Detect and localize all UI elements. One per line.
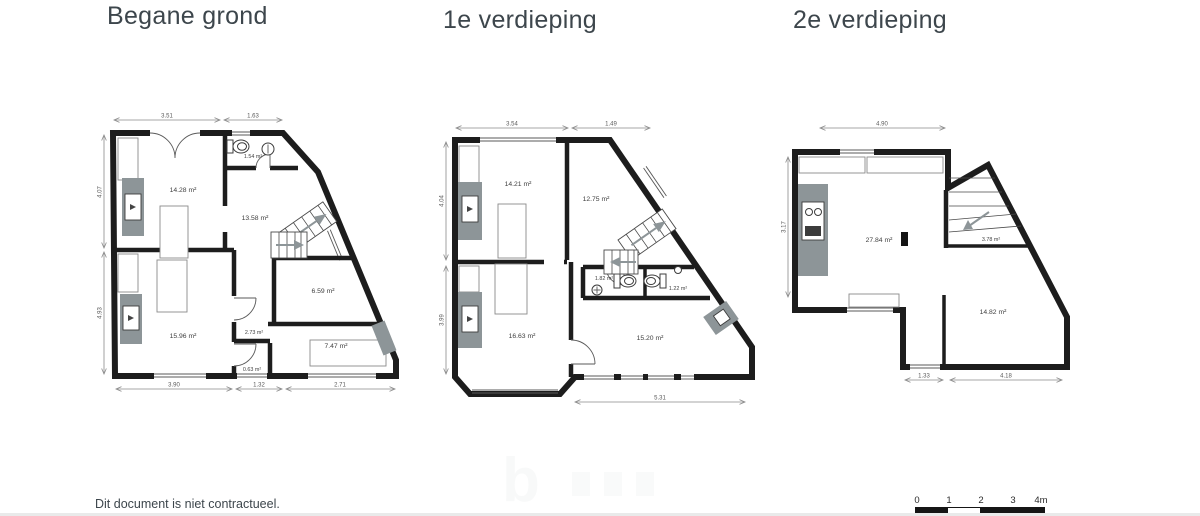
room-label: 2.73 m²: [245, 330, 263, 336]
room-label: 3.78 m²: [982, 237, 1000, 243]
room-label: 14.28 m²: [170, 187, 198, 194]
scale-tick-label: 0: [914, 495, 919, 506]
svg-text:4.18: 4.18: [1000, 374, 1012, 380]
watermark: b: [502, 450, 772, 512]
walls-interior: [455, 140, 710, 377]
svg-text:1.32: 1.32: [253, 383, 265, 389]
svg-text:3.51: 3.51: [161, 114, 173, 120]
shower-icon: [703, 301, 739, 335]
room-label: 27.84 m²: [866, 237, 894, 244]
svg-text:3.17: 3.17: [782, 221, 788, 233]
svg-text:4.07: 4.07: [98, 186, 104, 198]
svg-text:1.49: 1.49: [605, 122, 617, 128]
svg-text:3.90: 3.90: [168, 383, 180, 389]
svg-text:3.99: 3.99: [440, 314, 446, 326]
svg-text:4.93: 4.93: [98, 307, 104, 319]
plan-title-1e-verdieping: 1e verdieping: [443, 6, 597, 35]
room-label: 1.82 m²: [595, 276, 613, 282]
floorplan-sheet: Begane grond 1e verdieping 2e verdieping: [0, 0, 1200, 516]
room-label: 6.59 m²: [311, 288, 335, 295]
column: [901, 232, 908, 246]
stove-icon: [802, 202, 824, 240]
room-label: 7.47 m²: [324, 343, 348, 350]
svg-text:4.90: 4.90: [876, 122, 888, 128]
plan-title-2e-verdieping: 2e verdieping: [793, 6, 947, 35]
scale-tick-label: 2: [978, 495, 983, 506]
toilet-icon: [614, 274, 636, 288]
sink-icon: [262, 143, 274, 155]
furniture: [458, 146, 739, 348]
footer-note: Dit document is niet contractueel.: [95, 497, 280, 511]
plan-title-begane-grond: Begane grond: [107, 2, 268, 31]
scale-tick-label: 1: [946, 495, 951, 506]
toilet-icon: [644, 274, 666, 288]
svg-text:2.71: 2.71: [334, 383, 346, 389]
watermark-blocks: [572, 472, 654, 496]
scale-bar: 0 1 2 3 4m: [915, 495, 1047, 515]
scale-tick-label: 3: [1010, 495, 1015, 506]
toilet-icon: [227, 140, 249, 153]
floorplan-begane-grond: 14.28 m² 1.54 m² 13.58 m² 15.96 m² 2.73 …: [98, 108, 408, 408]
scale-bar-labels: 0 1 2 3 4m: [915, 495, 1047, 506]
svg-text:1.33: 1.33: [918, 374, 930, 380]
svg-text:4.04: 4.04: [440, 195, 446, 207]
room-label: 1.54 m²: [244, 154, 262, 160]
room-label: 15.20 m²: [637, 335, 665, 342]
stairs-straight-icon: [604, 250, 638, 274]
sink-icon: [592, 285, 602, 295]
room-label: 14.21 m²: [505, 181, 533, 188]
room-label: 1.22 m²: [669, 286, 687, 292]
walls-outer: [795, 152, 1067, 367]
room-label: 15.96 m²: [170, 333, 198, 340]
scale-unit-label: 4m: [1034, 495, 1047, 506]
room-label: 0.63 m²: [243, 367, 261, 373]
svg-text:5.31: 5.31: [654, 396, 666, 402]
floorplan-1e-verdieping: 14.21 m² 12.75 m² 1.82 m² 1.22 m² 16.63 …: [438, 110, 768, 415]
stairs-straight-icon: [271, 232, 307, 258]
svg-text:3.54: 3.54: [506, 122, 518, 128]
watermark-letter: b: [502, 446, 540, 515]
floorplan-2e-verdieping: 27.84 m² 3.78 m² 14.82 m² 4.90 3.17 1.33…: [785, 108, 1085, 398]
furniture: [798, 157, 943, 307]
room-label: 16.63 m²: [509, 333, 537, 340]
svg-text:1.63: 1.63: [247, 114, 259, 120]
windows-and-doors: [840, 147, 940, 372]
room-label: 13.58 m²: [242, 215, 270, 222]
sink-icon: [675, 267, 682, 274]
room-label: 12.75 m²: [583, 196, 611, 203]
room-label: 14.82 m²: [980, 309, 1008, 316]
